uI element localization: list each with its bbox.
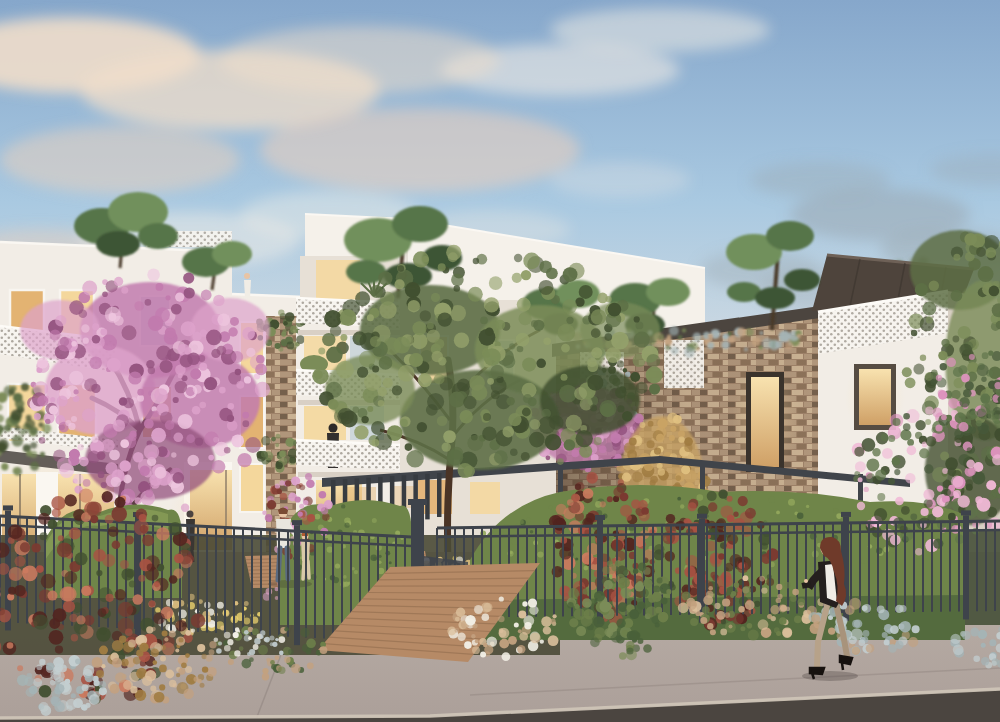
pine-canopy	[784, 269, 820, 291]
pine-canopy	[755, 287, 795, 309]
head	[187, 511, 194, 518]
hand	[804, 579, 808, 583]
pine-canopy	[96, 231, 140, 257]
lit-window	[751, 377, 779, 467]
pine-canopy	[392, 206, 448, 242]
pine-canopy	[138, 223, 178, 249]
resident-body	[244, 280, 251, 298]
pine-canopy	[646, 278, 690, 306]
scene-svg	[0, 0, 1000, 722]
window	[470, 482, 500, 514]
rendering-canvas	[0, 0, 1000, 722]
window	[240, 464, 264, 512]
pine-canopy	[766, 221, 814, 251]
gate-post-cap	[408, 499, 427, 505]
pine-canopy	[212, 241, 252, 267]
lit-window	[859, 369, 891, 425]
resident-head	[244, 273, 250, 279]
resident-head	[329, 424, 338, 433]
